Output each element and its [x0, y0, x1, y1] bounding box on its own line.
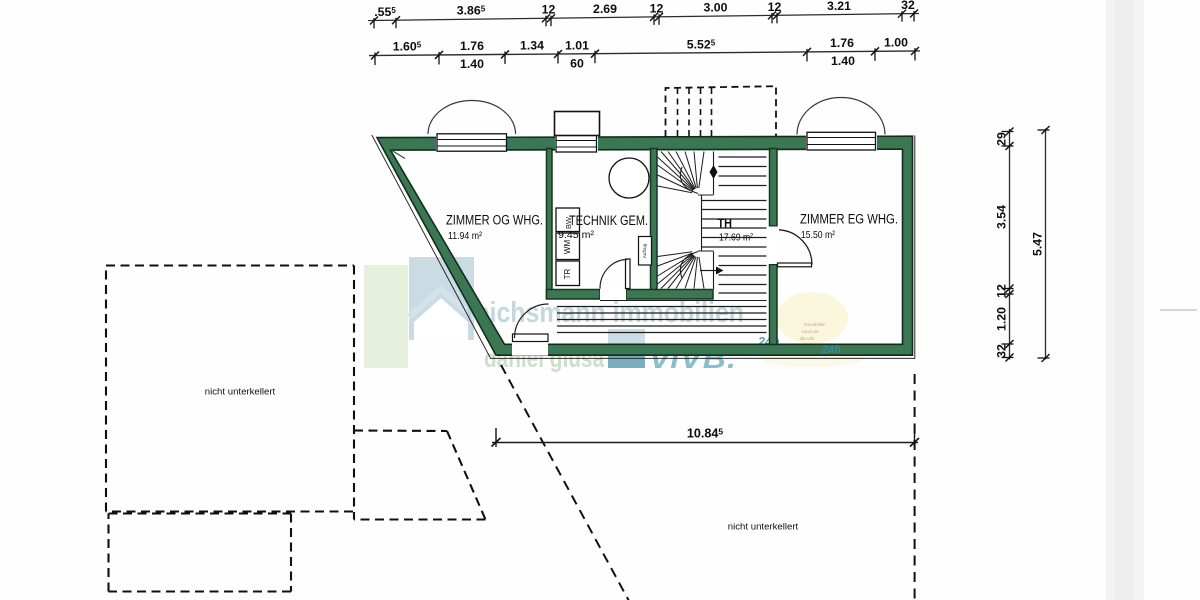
svg-text:die Uhr: die Uhr — [800, 336, 815, 341]
svg-text:TH: TH — [718, 216, 733, 231]
svg-text:2.69: 2.69 — [593, 2, 617, 16]
svg-text:TECHNIK GEM.: TECHNIK GEM. — [569, 213, 648, 229]
svg-text:1.76: 1.76 — [460, 39, 484, 53]
svg-text:12: 12 — [542, 3, 556, 17]
svg-text:12: 12 — [995, 284, 1009, 298]
svg-text:32: 32 — [901, 0, 915, 12]
svg-text:12: 12 — [768, 0, 782, 14]
svg-text:1.40: 1.40 — [831, 54, 855, 68]
svg-text:9.45 m²: 9.45 m² — [558, 230, 595, 241]
svg-text:1.76: 1.76 — [830, 36, 854, 50]
svg-text:ZIMMER EG WHG.: ZIMMER EG WHG. — [800, 212, 898, 228]
svg-text:32: 32 — [995, 344, 1009, 358]
svg-text:TR: TR — [563, 268, 572, 279]
svg-text:24h: 24h — [821, 344, 841, 356]
svg-text:1.34: 1.34 — [520, 39, 544, 53]
svg-text:17.69 m²: 17.69 m² — [719, 233, 753, 244]
svg-text:Aufzug: Aufzug — [642, 243, 647, 258]
svg-text:15.50 m²: 15.50 m² — [801, 230, 835, 241]
svg-text:nicht unterkellert: nicht unterkellert — [205, 387, 276, 398]
svg-text:3.54: 3.54 — [995, 205, 1009, 229]
svg-text:Immobilien: Immobilien — [804, 322, 826, 327]
svg-text:rund um: rund um — [802, 329, 819, 334]
svg-text:3.00: 3.00 — [704, 1, 728, 15]
svg-text:12: 12 — [650, 1, 664, 15]
svg-text:ZIMMER OG WHG.: ZIMMER OG WHG. — [446, 213, 543, 229]
svg-text:5.47: 5.47 — [1031, 232, 1045, 256]
svg-text:10.845: 10.845 — [687, 426, 724, 440]
svg-text:nicht unterkellert: nicht unterkellert — [728, 522, 799, 533]
svg-text:11.94 m²: 11.94 m² — [448, 231, 482, 242]
svg-text:29: 29 — [995, 132, 1009, 146]
svg-text:3.21: 3.21 — [827, 0, 851, 13]
svg-text:1.20: 1.20 — [995, 307, 1009, 331]
svg-text:1.00: 1.00 — [884, 36, 908, 50]
svg-text:1.01: 1.01 — [565, 38, 589, 52]
svg-text:WM: WM — [563, 240, 572, 255]
svg-text:60: 60 — [570, 56, 584, 70]
svg-text:1.40: 1.40 — [460, 57, 484, 71]
